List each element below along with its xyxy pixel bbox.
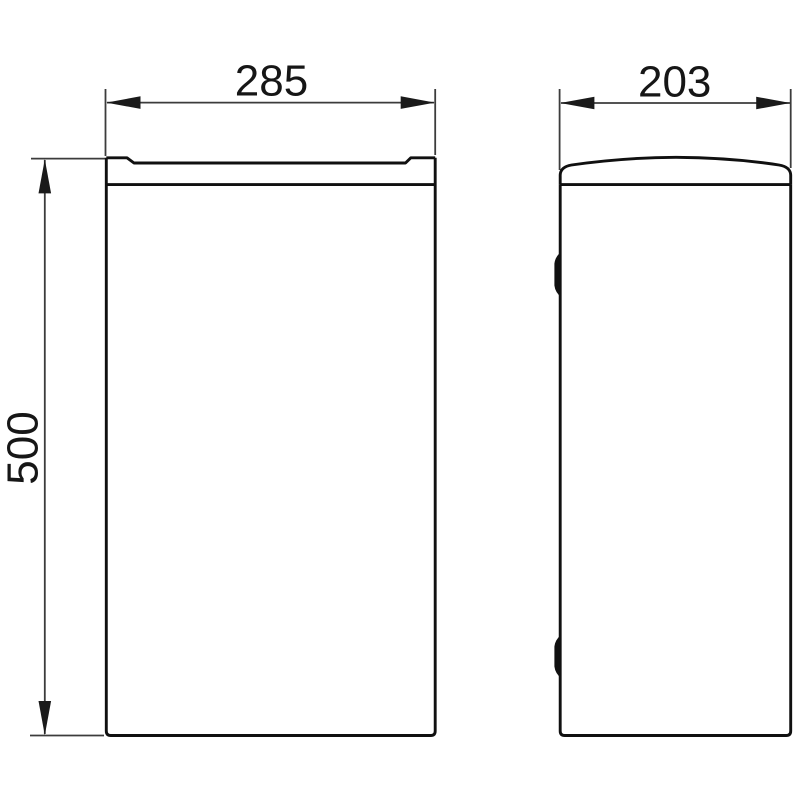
- svg-text:203: 203: [638, 58, 711, 107]
- svg-text:500: 500: [0, 411, 48, 484]
- svg-text:285: 285: [235, 57, 308, 106]
